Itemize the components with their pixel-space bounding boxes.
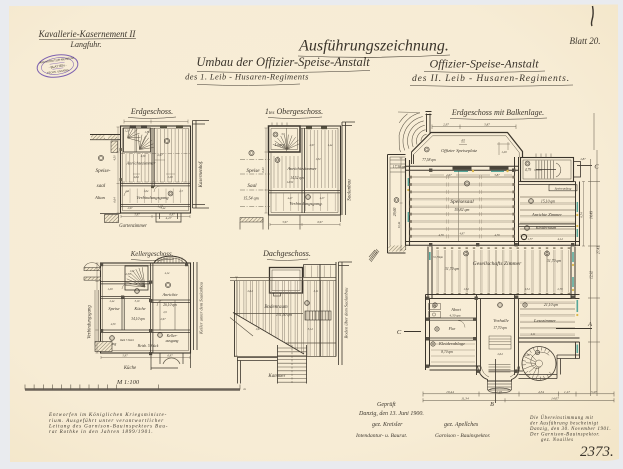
svg-text:5,87: 5,87 (494, 173, 500, 177)
svg-text:1,44: 1,44 (328, 144, 333, 147)
svg-text:Gartenzimmer: Gartenzimmer (119, 224, 147, 229)
svg-text:4,14: 4,14 (557, 237, 563, 241)
svg-text:ausgang: ausgang (166, 339, 179, 343)
svg-text:2,97: 2,97 (128, 207, 133, 210)
svg-text:1,52: 1,52 (315, 157, 321, 161)
svg-text:4,64: 4,64 (133, 175, 139, 179)
svg-text:Garnison - Bauinspektor.: Garnison - Bauinspektor. (435, 433, 491, 439)
svg-text:Kleiderraum: Kleiderraum (535, 225, 557, 230)
svg-text:4,50: 4,50 (141, 155, 146, 158)
svg-text:2,70: 2,70 (557, 287, 563, 291)
svg-text:2373.: 2373. (580, 444, 614, 460)
svg-text:2,97: 2,97 (157, 153, 163, 157)
svg-text:Kavallerie-Kasernement II: Kavallerie-Kasernement II (38, 29, 137, 39)
svg-text:Die Übereinstimmung mit: Die Übereinstimmung mit (529, 415, 594, 421)
svg-text:Intendantur- u. Baurat.: Intendantur- u. Baurat. (355, 433, 407, 439)
svg-text:Entworfen im Königlichen Krieg: Entworfen im Königlichen Kriegsministe- (48, 411, 167, 418)
svg-text:2,11: 2,11 (314, 289, 319, 293)
svg-text:Danzig, den 13. Juni 1900.: Danzig, den 13. Juni 1900. (358, 411, 424, 417)
svg-text:der Ausführung bescheinigt: der Ausführung bescheinigt (530, 422, 599, 427)
svg-text:4,11: 4,11 (531, 332, 536, 336)
svg-text:1,20: 1,20 (125, 130, 130, 133)
svg-text:Keller unter dem Saalanbau: Keller unter dem Saalanbau (199, 281, 204, 335)
svg-text:M 1:100: M 1:100 (116, 379, 140, 386)
svg-text:6,97: 6,97 (317, 220, 323, 224)
svg-text:10,44: 10,44 (397, 221, 401, 228)
svg-text:14,52: 14,52 (287, 180, 294, 184)
svg-text:Langfuhr.: Langfuhr. (70, 40, 102, 49)
svg-text:saal: saal (97, 183, 106, 189)
svg-text:gez. Kreisler: gez. Kreisler (372, 422, 403, 428)
svg-text:2,64: 2,64 (247, 289, 253, 293)
svg-text:Speiseaufzug: Speiseaufzug (555, 187, 572, 191)
svg-text:4,97: 4,97 (459, 232, 465, 236)
svg-text:3,10: 3,10 (135, 300, 140, 303)
svg-text:Bodenraum: Bodenraum (264, 305, 288, 310)
svg-text:2,64: 2,64 (497, 352, 503, 356)
svg-text:4,50: 4,50 (113, 155, 117, 161)
svg-text:Lesezimmer: Lesezimmer (533, 318, 556, 323)
svg-text:4,14: 4,14 (165, 272, 170, 275)
svg-text:Verbindungsgang: Verbindungsgang (136, 195, 169, 200)
svg-text:Anrichte Zimmer: Anrichte Zimmer (531, 212, 562, 217)
svg-text:Speisesaal: Speisesaal (450, 199, 474, 205)
svg-text:9,74: 9,74 (580, 212, 584, 218)
svg-text:31,70qm: 31,70qm (433, 255, 443, 259)
svg-text:Verbindungsgang: Verbindungsgang (88, 305, 93, 339)
svg-text:6,97: 6,97 (169, 213, 175, 217)
svg-text:1tes Obergeschoss.: 1tes Obergeschoss. (265, 107, 323, 116)
svg-text:6,64: 6,64 (113, 197, 117, 203)
svg-text:Offizier-Speise-Anstalt: Offizier-Speise-Anstalt (429, 57, 539, 71)
svg-text:Der Garnison-Bauinspektor.: Der Garnison-Bauinspektor. (529, 433, 600, 438)
svg-text:Küche: Küche (123, 366, 137, 371)
svg-text:A: A (587, 321, 592, 328)
svg-text:Saal: Saal (247, 183, 257, 189)
svg-text:6,40: 6,40 (261, 167, 265, 173)
svg-text:4,27: 4,27 (288, 197, 293, 200)
svg-text:5,97: 5,97 (282, 220, 288, 224)
svg-text:6,97: 6,97 (167, 354, 173, 358)
svg-text:2,44: 2,44 (110, 300, 115, 303)
svg-text:Keller-: Keller- (166, 334, 178, 338)
svg-text:2,20: 2,20 (167, 175, 173, 179)
svg-text:1,97: 1,97 (130, 270, 135, 273)
svg-text:Flur: Flur (448, 327, 456, 331)
svg-text:2,97: 2,97 (310, 144, 315, 147)
svg-text:Rath 5 Stück: Rath 5 Stück (119, 339, 134, 342)
svg-text:gez. Apellches: gez. Apellches (444, 422, 479, 428)
svg-text:Heizb. 5 Stück: Heizb. 5 Stück (137, 344, 159, 348)
svg-text:Blatt 20.: Blatt 20. (570, 36, 601, 46)
svg-text:Anrichtezimmer: Anrichtezimmer (286, 166, 317, 171)
svg-text:Kasernenhof.: Kasernenhof. (199, 161, 204, 189)
svg-text:3,14: 3,14 (307, 327, 313, 331)
svg-text:B: B (490, 402, 494, 408)
svg-text:1,20: 1,20 (107, 287, 113, 291)
svg-text:Geprüft: Geprüft (377, 401, 396, 408)
svg-text:Offizier Speiseplatz: Offizier Speiseplatz (441, 148, 477, 153)
svg-text:Speise: Speise (108, 306, 119, 311)
svg-text:1,54: 1,54 (463, 287, 469, 291)
svg-text:2,87: 2,87 (580, 157, 586, 161)
svg-text:4,50: 4,50 (111, 323, 116, 326)
svg-text:1,64: 1,64 (144, 190, 149, 193)
svg-text:Saalanbau: Saalanbau (348, 179, 353, 201)
svg-text:des II. Leib - Husaren-Regim: des II. Leib - Husaren-Regiments. (412, 74, 570, 84)
svg-text:Abort: Abort (450, 307, 461, 312)
svg-text:5,97: 5,97 (134, 213, 140, 217)
svg-text:Umbau der Offizier-Speise-Anst: Umbau der Offizier-Speise-Anstalt (196, 55, 370, 69)
svg-text:Dachgeschoss.: Dachgeschoss. (262, 249, 311, 258)
svg-text:1,97: 1,97 (255, 327, 261, 331)
svg-text:rat Rothke in den Jahren 1899/: rat Rothke in den Jahren 1899/1901. (49, 429, 154, 435)
svg-text:Gesellschafts Zimmer: Gesellschafts Zimmer (473, 260, 522, 267)
svg-text:3,44: 3,44 (161, 207, 166, 210)
svg-text:1,54: 1,54 (524, 287, 530, 291)
svg-text:Vorhalle: Vorhalle (493, 318, 508, 323)
svg-text:Kellergeschoss.: Kellergeschoss. (130, 251, 174, 258)
svg-text:C: C (397, 329, 402, 336)
svg-text:gez. Noailles: gez. Noailles (541, 438, 574, 443)
svg-text:Altan: Altan (94, 195, 106, 200)
svg-text:Speise: Speise (246, 168, 260, 174)
svg-text:Erdgeschoss.: Erdgeschoss. (130, 107, 173, 116)
svg-text:Verbindungsgang.: Verbindungsgang. (289, 201, 322, 206)
svg-text:Boden über dem Saalanbau: Boden über dem Saalanbau (344, 287, 349, 339)
svg-text:des 1. Leib - Husaren-Regimen: des 1. Leib - Husaren-Regiments (185, 72, 309, 82)
svg-text:4,70: 4,70 (438, 233, 444, 237)
svg-text:Danzig, den 30. November 1901.: Danzig, den 30. November 1901. (529, 427, 611, 432)
svg-text:Speise-: Speise- (96, 168, 111, 174)
svg-text:Anrichte: Anrichte (161, 292, 177, 297)
svg-text:Kleiderablage: Kleiderablage (438, 341, 465, 346)
svg-text:Erdgeschoss mit Balkenlage.: Erdgeschoss mit Balkenlage. (451, 108, 544, 117)
svg-text:5,97: 5,97 (122, 354, 128, 358)
svg-text:4,27: 4,27 (320, 197, 325, 200)
svg-text:Ausführungszeichnung.: Ausführungszeichnung. (298, 38, 449, 55)
svg-text:2,97: 2,97 (446, 173, 452, 177)
svg-text:Küche: Küche (133, 306, 145, 311)
svg-text:Anrichtezimmer: Anrichtezimmer (125, 161, 156, 166)
svg-text:4,70: 4,70 (494, 233, 500, 237)
svg-text:1,77: 1,77 (527, 237, 533, 241)
svg-text:1,30: 1,30 (144, 130, 150, 134)
svg-text:2,97: 2,97 (160, 317, 166, 321)
